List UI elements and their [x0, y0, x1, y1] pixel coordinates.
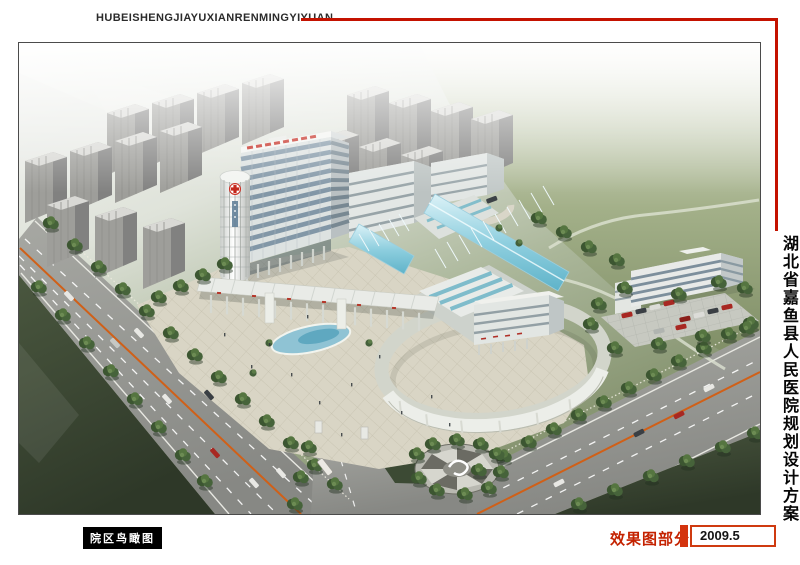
section-label: 效果图部分 [610, 528, 690, 549]
mist-overlay [19, 43, 760, 193]
page-title: HUBEISHENGJIAYUXIANRENMINGYIYUAN [96, 12, 333, 24]
presentation-board: HUBEISHENGJIAYUXIANRENMINGYIYUAN [0, 0, 800, 565]
accent-line-horizontal [301, 18, 778, 21]
side-title: 湖北省嘉鱼县人民医院规划设计方案 [762, 235, 796, 523]
red-bar [680, 525, 688, 547]
rendering-frame [18, 42, 761, 515]
aerial-rendering [19, 43, 760, 514]
accent-line-vertical [775, 18, 778, 231]
caption-badge: 院区鸟瞰图 [83, 527, 162, 549]
date-box: 2009.5 [690, 525, 776, 547]
